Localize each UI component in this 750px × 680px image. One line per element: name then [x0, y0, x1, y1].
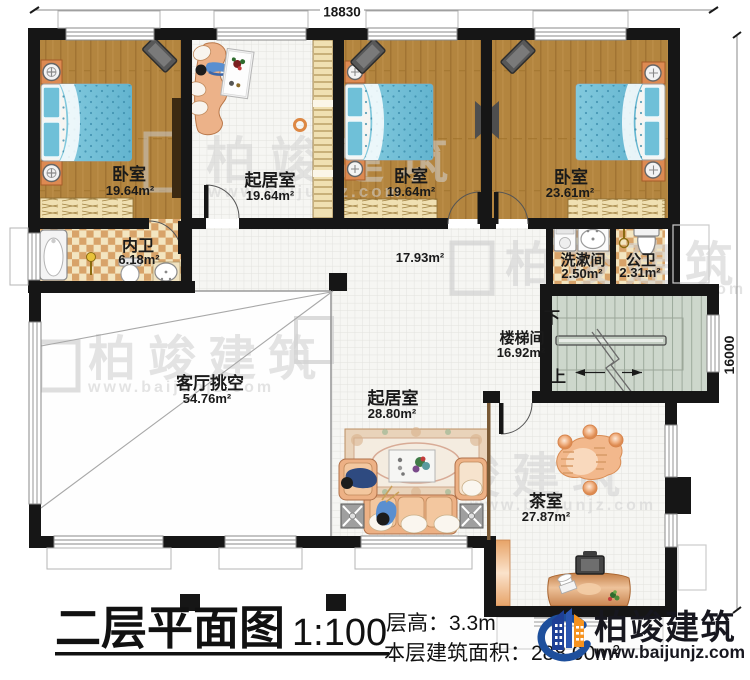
svg-text:www.baijunjz.com: www.baijunjz.com — [207, 182, 403, 201]
svg-text:茶室: 茶室 — [529, 491, 563, 511]
svg-text:下: 下 — [544, 310, 560, 327]
svg-text:2.50m²: 2.50m² — [561, 266, 603, 281]
svg-text:二层平面图: 二层平面图 — [55, 602, 285, 654]
svg-text:19.64m²: 19.64m² — [106, 183, 155, 198]
svg-text:18830: 18830 — [323, 5, 361, 20]
svg-text:卧室: 卧室 — [554, 167, 588, 187]
svg-text:层高：3.3m: 层高：3.3m — [386, 612, 496, 635]
svg-text:起居室: 起居室 — [367, 388, 419, 408]
svg-text:23.61m²: 23.61m² — [546, 185, 595, 200]
svg-text:27.87m²: 27.87m² — [522, 509, 571, 524]
svg-text:28.80m²: 28.80m² — [368, 406, 417, 421]
svg-text:上: 上 — [550, 368, 566, 386]
svg-text:19.64m²: 19.64m² — [387, 184, 436, 199]
svg-text:17.93m²: 17.93m² — [396, 250, 445, 265]
svg-text:www.baijunjz.com: www.baijunjz.com — [593, 642, 745, 662]
svg-text:起居室: 起居室 — [244, 170, 296, 190]
svg-text:卧室: 卧室 — [112, 164, 146, 184]
svg-text:客厅挑空: 客厅挑空 — [175, 373, 244, 393]
svg-text:54.76m²: 54.76m² — [183, 391, 232, 406]
svg-text:1:100: 1:100 — [292, 612, 387, 654]
svg-text:6.18m²: 6.18m² — [118, 252, 160, 267]
svg-text:卧室: 卧室 — [394, 166, 428, 186]
svg-text:16.92m²: 16.92m² — [497, 345, 546, 360]
svg-text:2.31m²: 2.31m² — [619, 265, 661, 280]
svg-text:16000: 16000 — [721, 335, 737, 374]
svg-text:19.64m²: 19.64m² — [246, 188, 295, 203]
